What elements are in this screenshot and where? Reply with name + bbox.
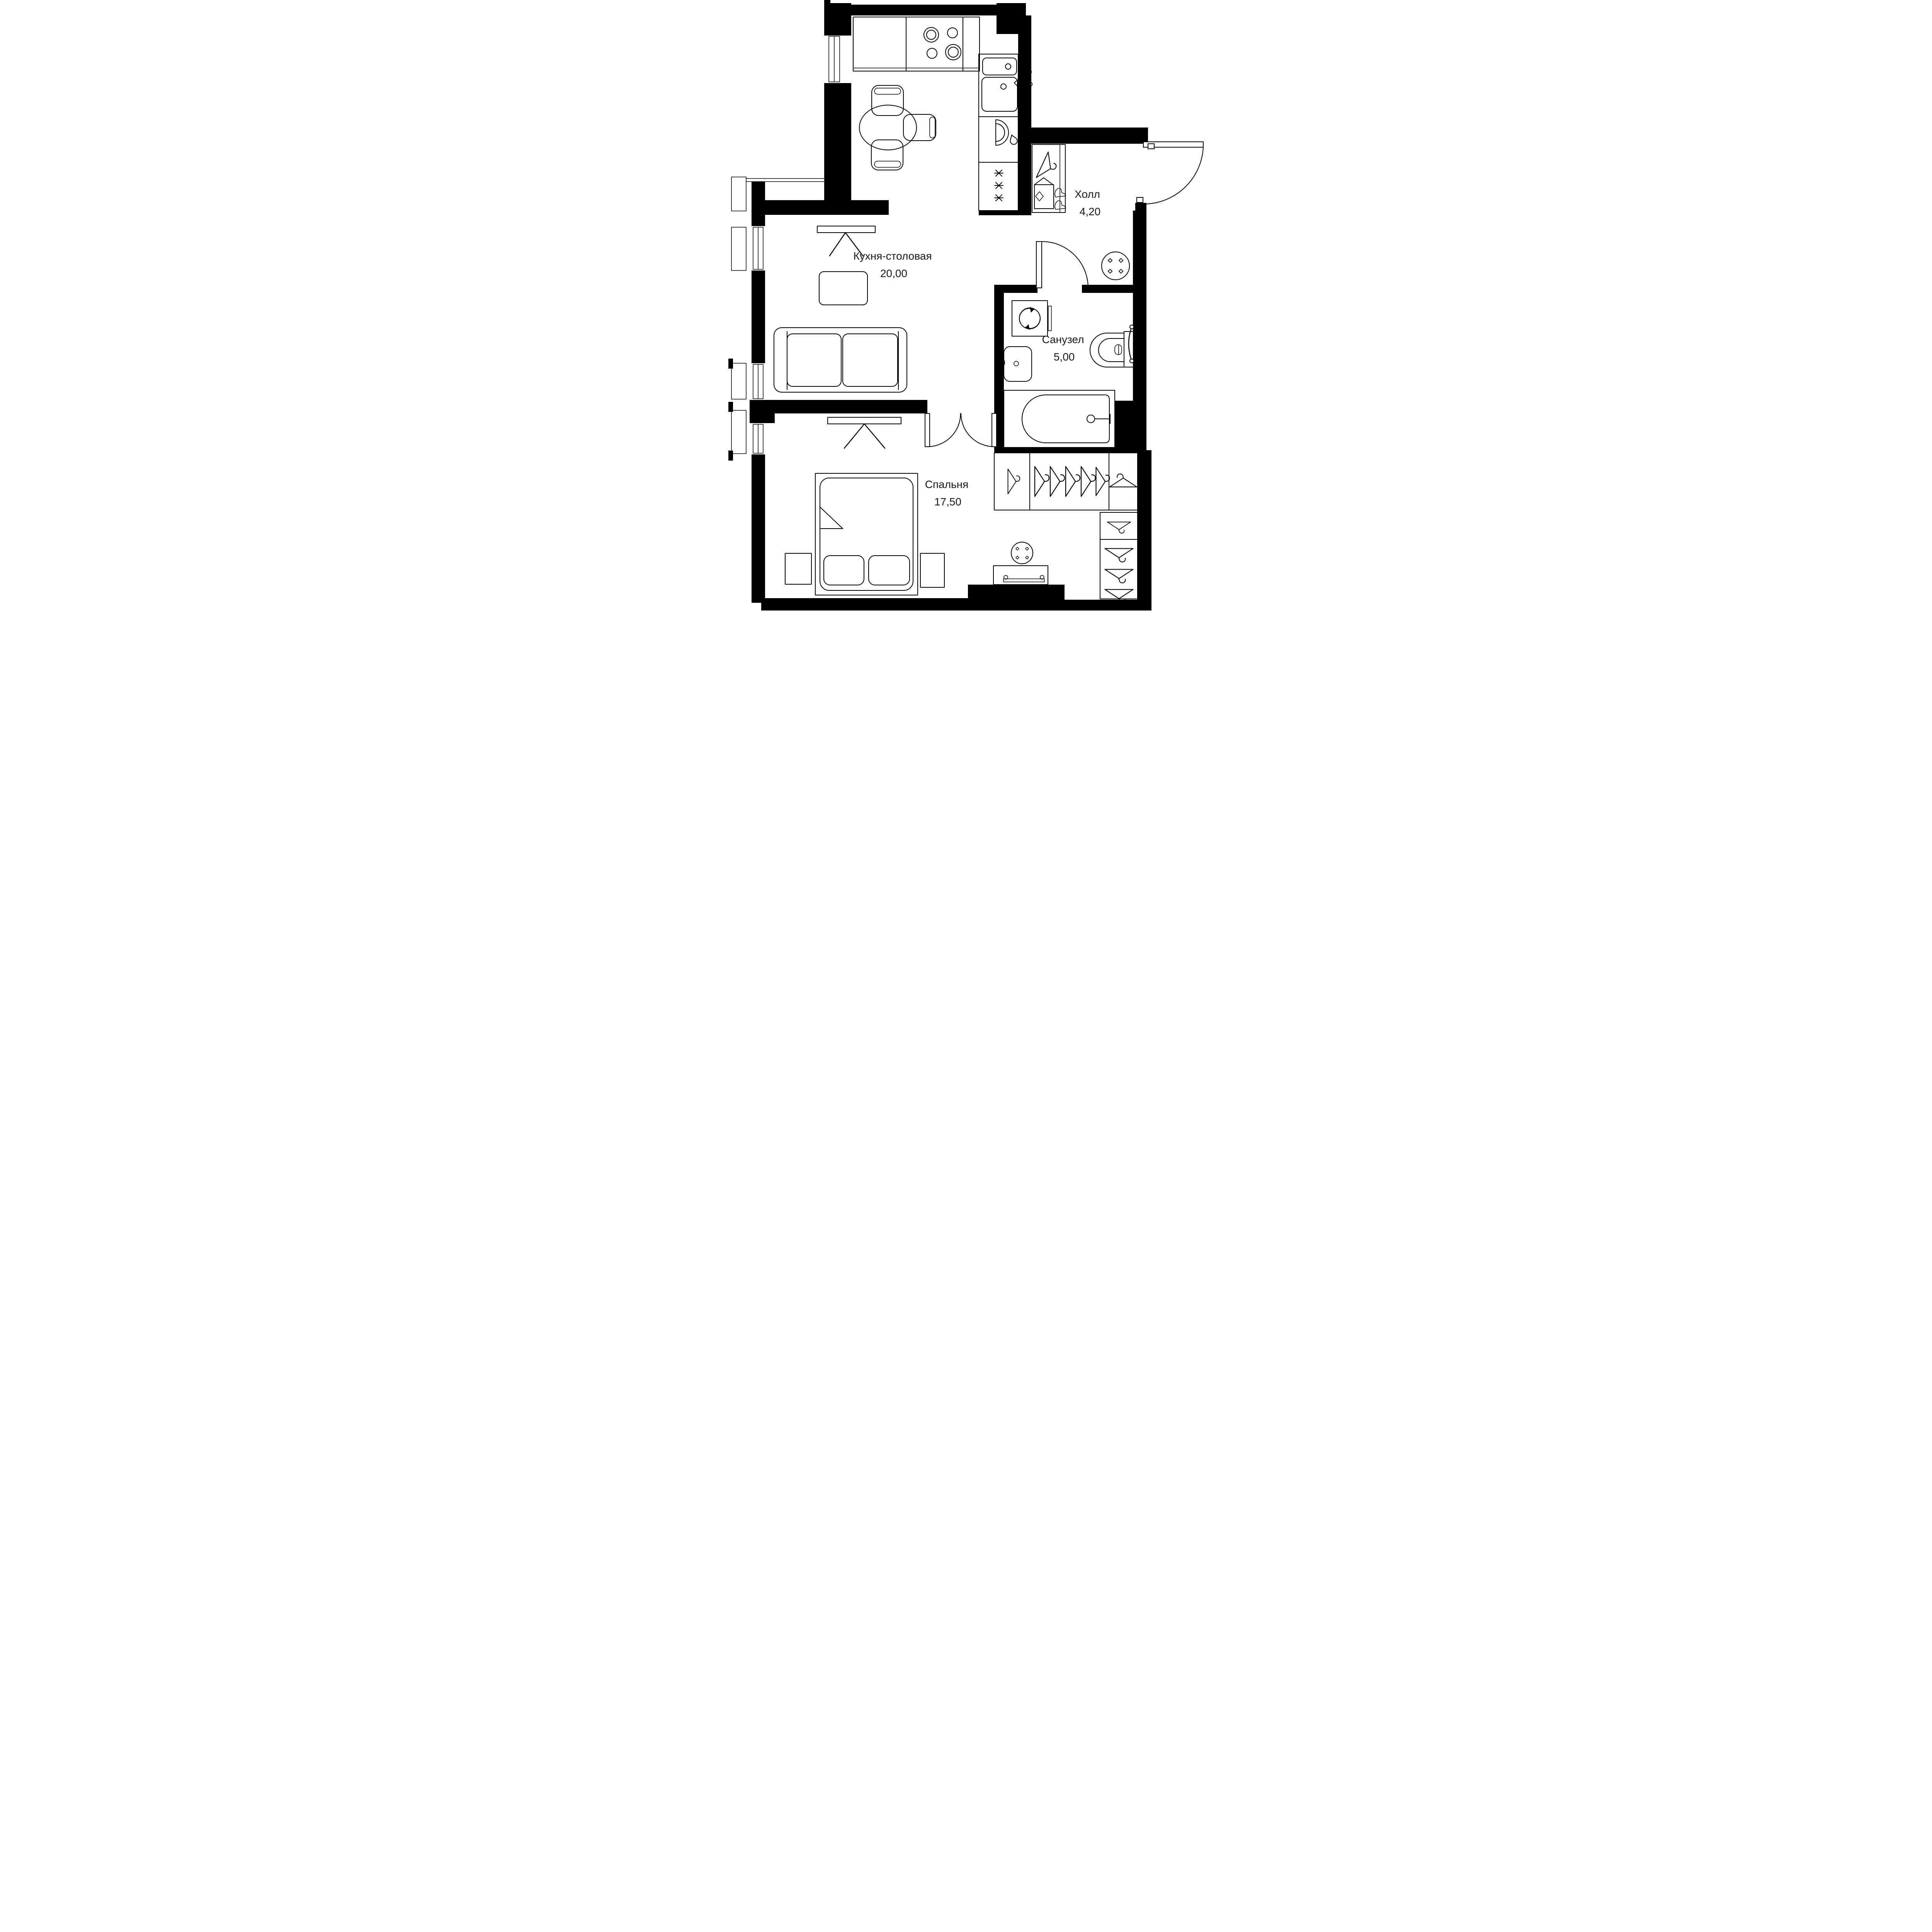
window-left-1 <box>753 227 763 269</box>
windows <box>731 36 840 454</box>
boots-icon <box>1055 188 1066 209</box>
hall-closet <box>1032 145 1066 213</box>
room-label-bedroom: Спальня <box>925 478 968 490</box>
pillow <box>824 556 864 585</box>
room-label-kitchen: Кухня-столовая <box>853 250 932 262</box>
dining-chairs <box>871 85 936 170</box>
room-area-hall: 4,20 <box>1079 206 1100 218</box>
wardrobe-hanger-row <box>994 453 1138 510</box>
coffee-table <box>819 272 867 305</box>
room-label-hall: Холл <box>1075 188 1100 200</box>
window-left-3 <box>753 424 763 453</box>
kitchen-counter <box>853 17 980 71</box>
nightstand-left <box>785 553 811 584</box>
bathroom-door <box>1036 241 1088 288</box>
room-label-bathroom: Санузел <box>1042 333 1084 345</box>
room-area-bathroom: 5,00 <box>1053 351 1075 363</box>
floorplan-drawing: Кухня-столовая 20,00 Холл 4,20 Санузел 5… <box>728 0 1204 617</box>
room-area-bedroom: 17,50 <box>934 496 961 508</box>
blanket-fold <box>820 507 843 529</box>
pillow <box>869 556 910 585</box>
cooktop-icon <box>924 27 961 60</box>
tv-icon-bedroom <box>828 417 901 448</box>
bedroom-pouf <box>1011 542 1033 564</box>
washing-machine-icon <box>1012 301 1051 336</box>
floorplan-page: Кухня-столовая 20,00 Холл 4,20 Санузел 5… <box>728 0 1204 617</box>
room-labels: Кухня-столовая 20,00 Холл 4,20 Санузел 5… <box>853 188 1100 508</box>
door-jamb <box>1137 197 1143 202</box>
shoe-box-icon <box>1034 178 1054 209</box>
double-bed <box>815 473 918 595</box>
walls <box>728 0 1151 611</box>
window-top-left <box>829 36 840 82</box>
wardrobe-column <box>1100 512 1138 603</box>
console-drawer <box>993 566 1048 585</box>
hall-pouf <box>1102 252 1129 280</box>
bedroom-double-door <box>925 413 997 447</box>
sofa <box>774 328 907 392</box>
nightstand-right <box>920 553 944 587</box>
bathtub-icon <box>1004 390 1115 447</box>
fridge-icon <box>995 170 1003 201</box>
entrance-door <box>1137 142 1203 204</box>
toilet-icon <box>1090 332 1133 367</box>
window-left-2 <box>753 364 763 399</box>
closet-hanger-icon <box>1036 152 1060 183</box>
door-jamb <box>1148 144 1154 149</box>
room-area-kitchen: 20,00 <box>880 267 907 279</box>
dining-table <box>859 105 917 150</box>
